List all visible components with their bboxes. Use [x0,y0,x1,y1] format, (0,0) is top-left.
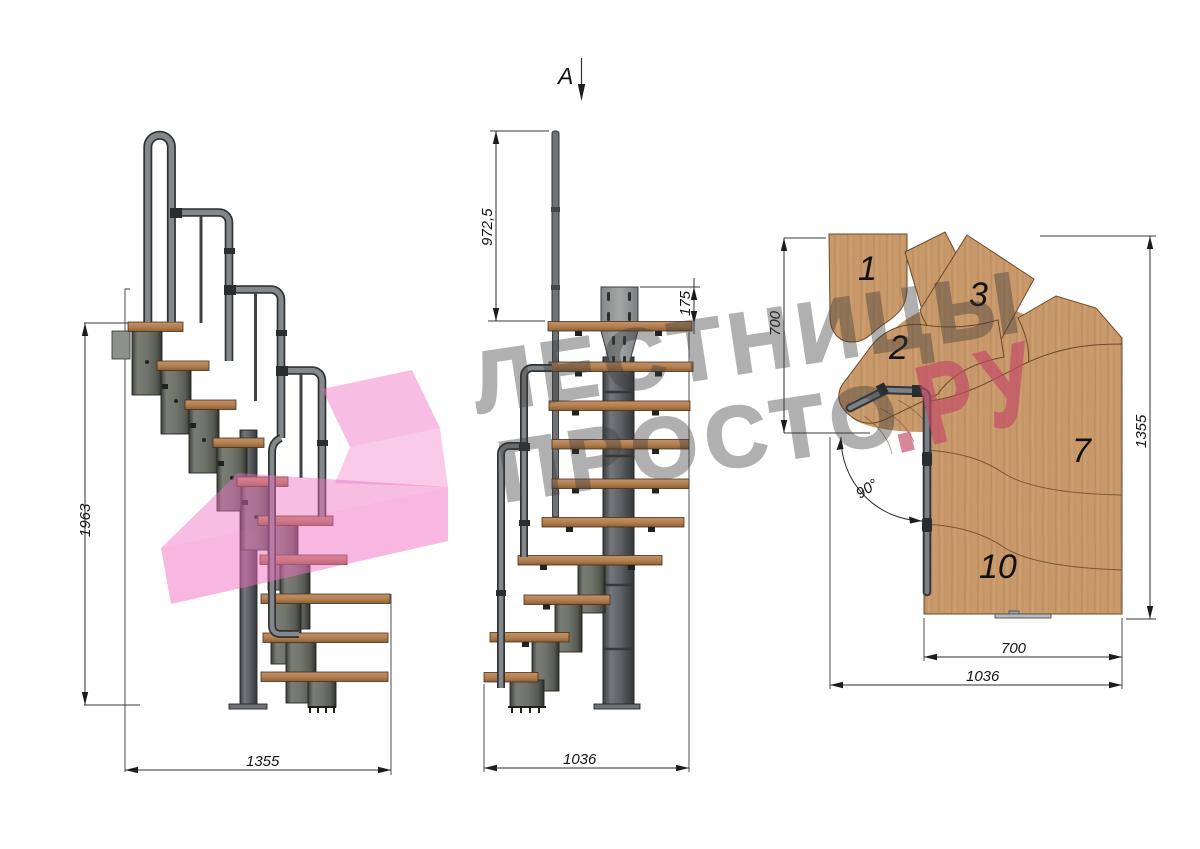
svg-text:1036: 1036 [966,668,1000,685]
svg-text:1355: 1355 [246,753,280,770]
svg-text:700: 700 [1001,640,1027,657]
svg-text:A: A [556,63,573,89]
svg-text:972,5: 972,5 [479,208,496,246]
svg-text:7: 7 [1072,432,1092,470]
svg-text:1355: 1355 [1133,414,1150,448]
svg-text:1963: 1963 [77,503,94,537]
svg-text:1036: 1036 [563,751,597,768]
svg-text:10: 10 [979,548,1017,586]
